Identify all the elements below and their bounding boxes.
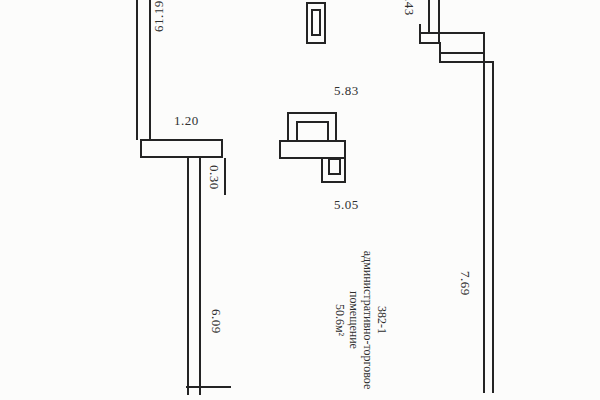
dimension-label-wall-left-length: 6.09 <box>208 309 224 334</box>
wall-left-lower-line-a <box>187 156 189 395</box>
wall-top-right-h1 <box>419 32 485 34</box>
room-number: 382-1 <box>375 235 389 400</box>
column-symbol-top-inner <box>311 9 321 36</box>
dimension-label-wall-thickness: 0.30 <box>206 165 222 190</box>
dimension-label-wall-right-length: 7.69 <box>457 271 473 296</box>
dimension-label-wall-top-right: 1.43 <box>401 0 417 16</box>
wall-top-right-v2 <box>438 0 440 44</box>
wall-left-top-outer-line <box>136 0 138 140</box>
wall-top-right-stub <box>419 24 421 44</box>
wall-top-right-h4 <box>439 61 494 63</box>
wall-top-right-h3 <box>439 52 485 54</box>
wall-right-outer-line <box>492 61 494 393</box>
floor-plan: 61.19 1.20 0.30 6.09 5.83 5.05 382-1 адм… <box>0 0 600 400</box>
dimension-label-span-upper: 5.83 <box>334 83 359 99</box>
wall-bar-horizontal <box>279 140 346 159</box>
wall-segment-horizontal <box>140 139 223 158</box>
wall-right-inner-line <box>483 32 485 393</box>
extension-line <box>224 158 226 195</box>
room-label: 382-1 административно-торговое помещение… <box>333 235 389 400</box>
dimension-label-lintel: 1.20 <box>174 113 199 129</box>
dimension-label-span-lower: 5.05 <box>334 197 359 213</box>
room-name-line1: административно-торговое <box>361 235 375 400</box>
room-area: 50.6м² <box>333 235 347 400</box>
room-name-line2: помещение <box>347 235 361 400</box>
column-small-inner <box>328 158 341 175</box>
wall-top-right-v1 <box>428 0 430 34</box>
wall-left-lower-line-b <box>199 156 201 395</box>
dimension-label-wall-top-left: 61.19 <box>151 0 167 32</box>
wall-top-right-h2 <box>419 42 441 44</box>
wall-left-bottom-tick <box>186 386 231 388</box>
